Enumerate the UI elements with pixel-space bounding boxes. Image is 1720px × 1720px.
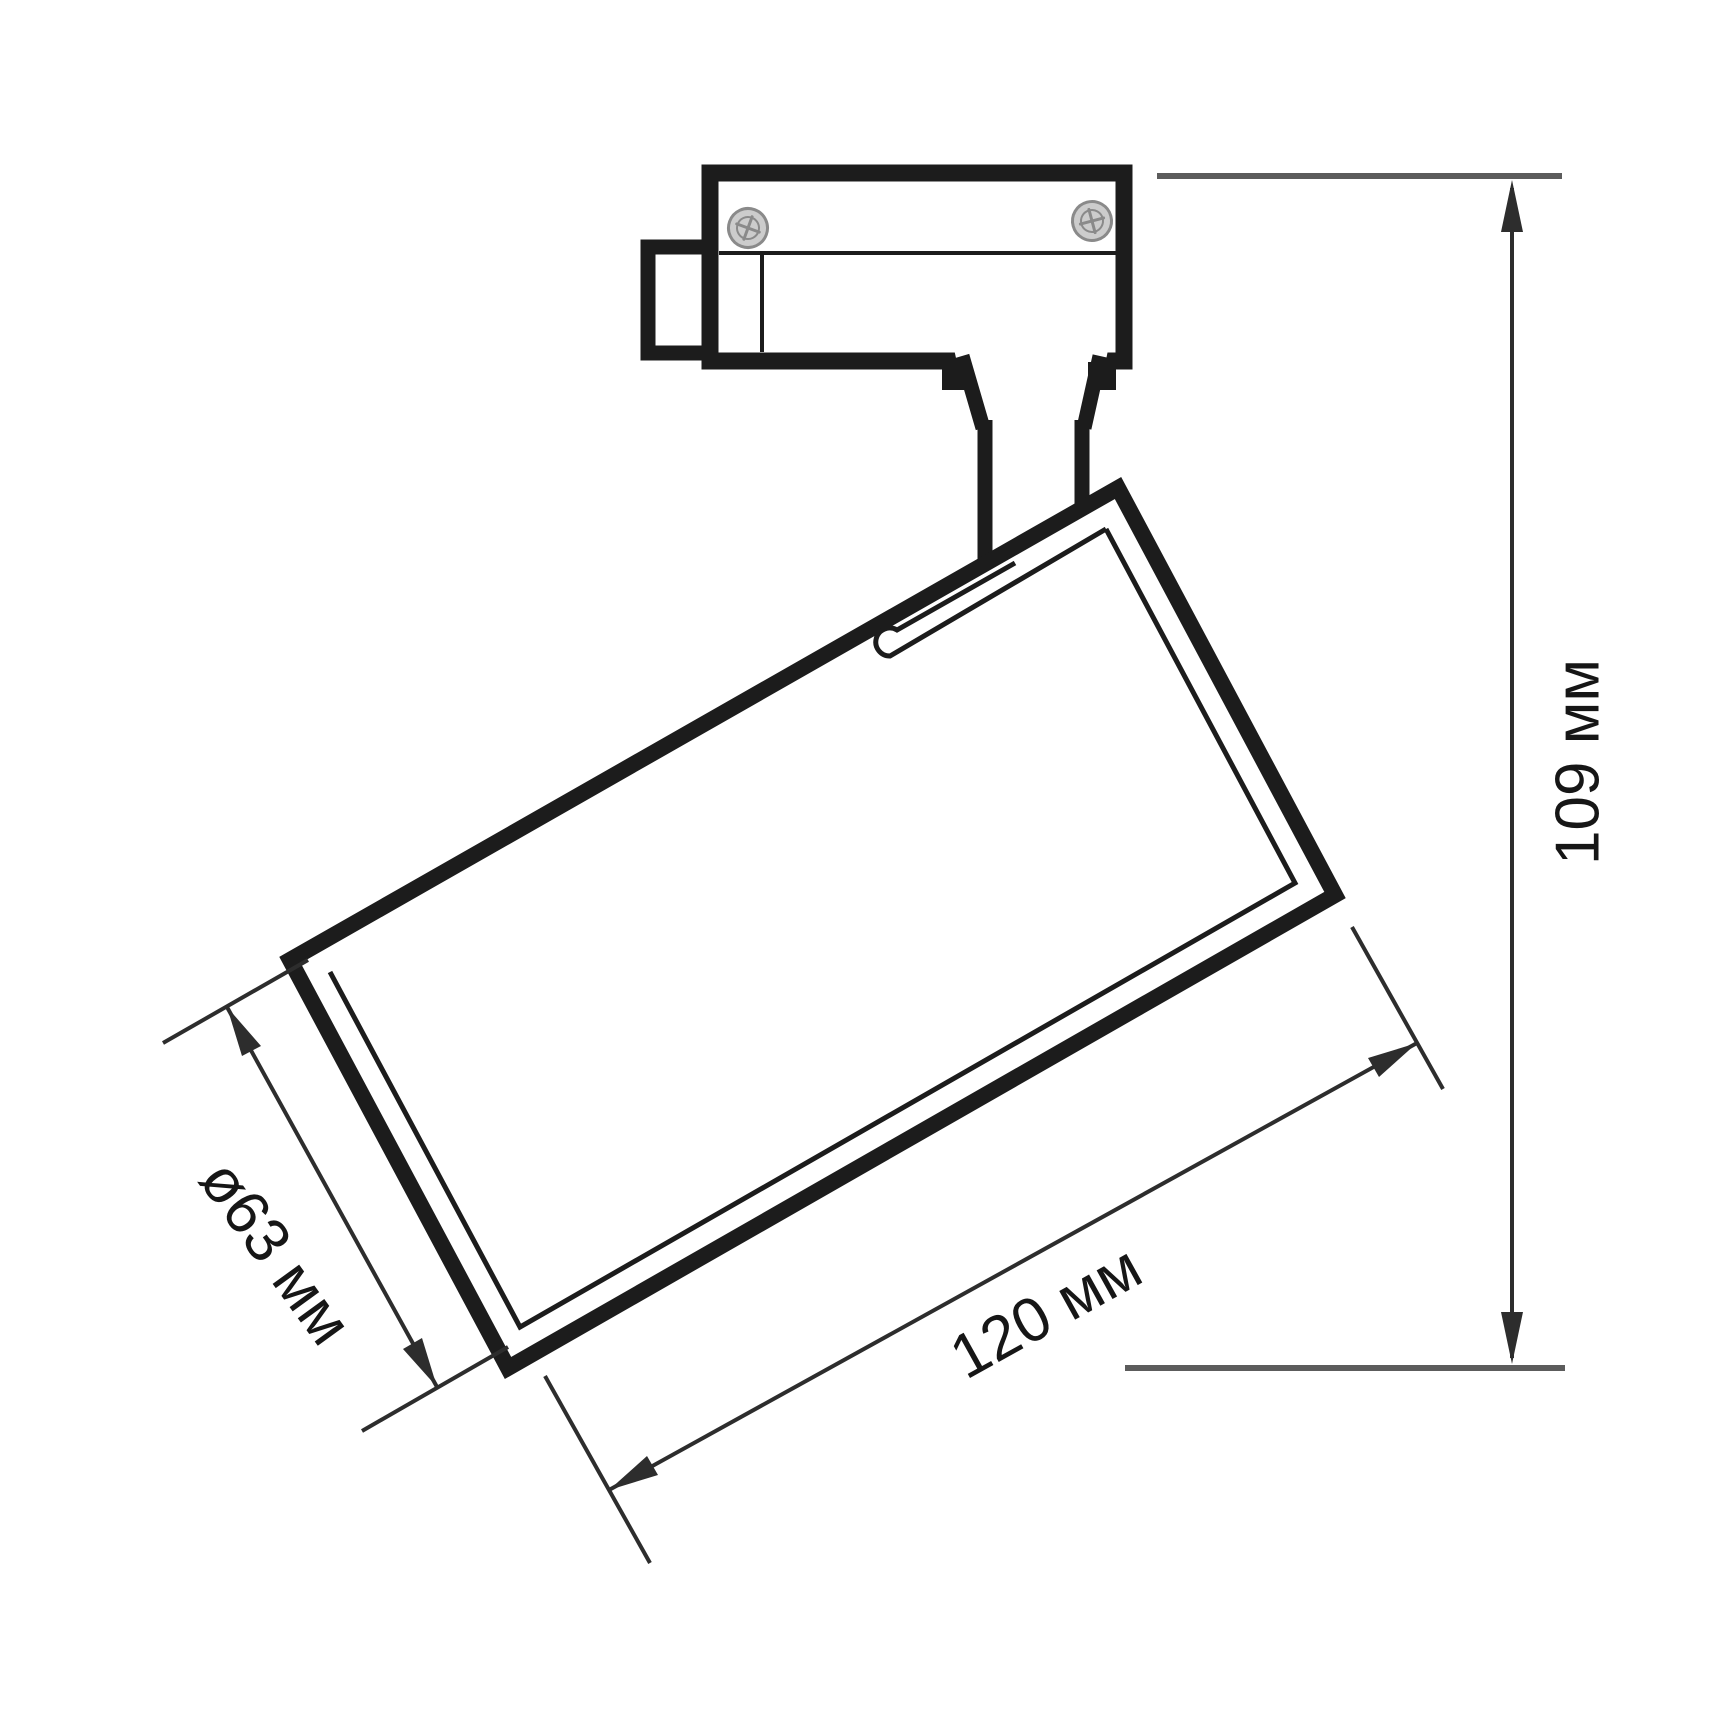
arrow-up-icon (1501, 180, 1523, 232)
arrow-up-left-icon (227, 1007, 261, 1056)
length-dimension-label: 120 мм (939, 1232, 1153, 1392)
adapter-housing (710, 173, 1124, 361)
technical-drawing-canvas: 109 мм 120 мм ø63 мм (0, 0, 1720, 1720)
arrow-right-icon (1368, 1043, 1417, 1077)
track-adapter (648, 173, 1124, 361)
length-extension-line-right (1352, 927, 1443, 1089)
neck-ear-left (942, 362, 970, 390)
neck-ear-right (1088, 362, 1116, 390)
arrow-left-icon (609, 1456, 658, 1490)
arrow-down-icon (1501, 1312, 1523, 1364)
lamp-body (290, 488, 1335, 1368)
diameter-dimension-label: ø63 мм (186, 1148, 365, 1358)
lamp-body-outline (290, 488, 1335, 1368)
arrow-down-right-icon (403, 1338, 437, 1387)
diameter-extension-line-bottom (362, 1347, 508, 1431)
spotlight-dimension-diagram: 109 мм 120 мм ø63 мм (0, 0, 1720, 1720)
height-dimension-label: 109 мм (1543, 659, 1612, 865)
